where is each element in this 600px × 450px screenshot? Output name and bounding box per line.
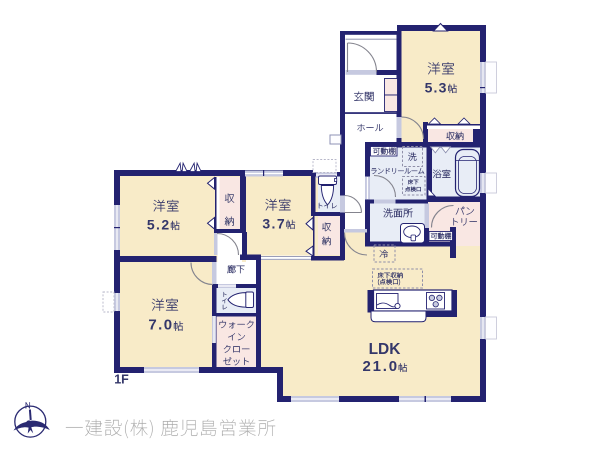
svg-text:7.0: 7.0 bbox=[148, 317, 173, 334]
svg-text:3.7: 3.7 bbox=[262, 216, 286, 232]
svg-text:21.0: 21.0 bbox=[362, 358, 398, 375]
svg-text:LDK: LDK bbox=[369, 341, 402, 358]
svg-text:5.3: 5.3 bbox=[425, 80, 448, 96]
svg-text:1F: 1F bbox=[114, 373, 129, 387]
svg-text:5.2: 5.2 bbox=[147, 217, 171, 233]
